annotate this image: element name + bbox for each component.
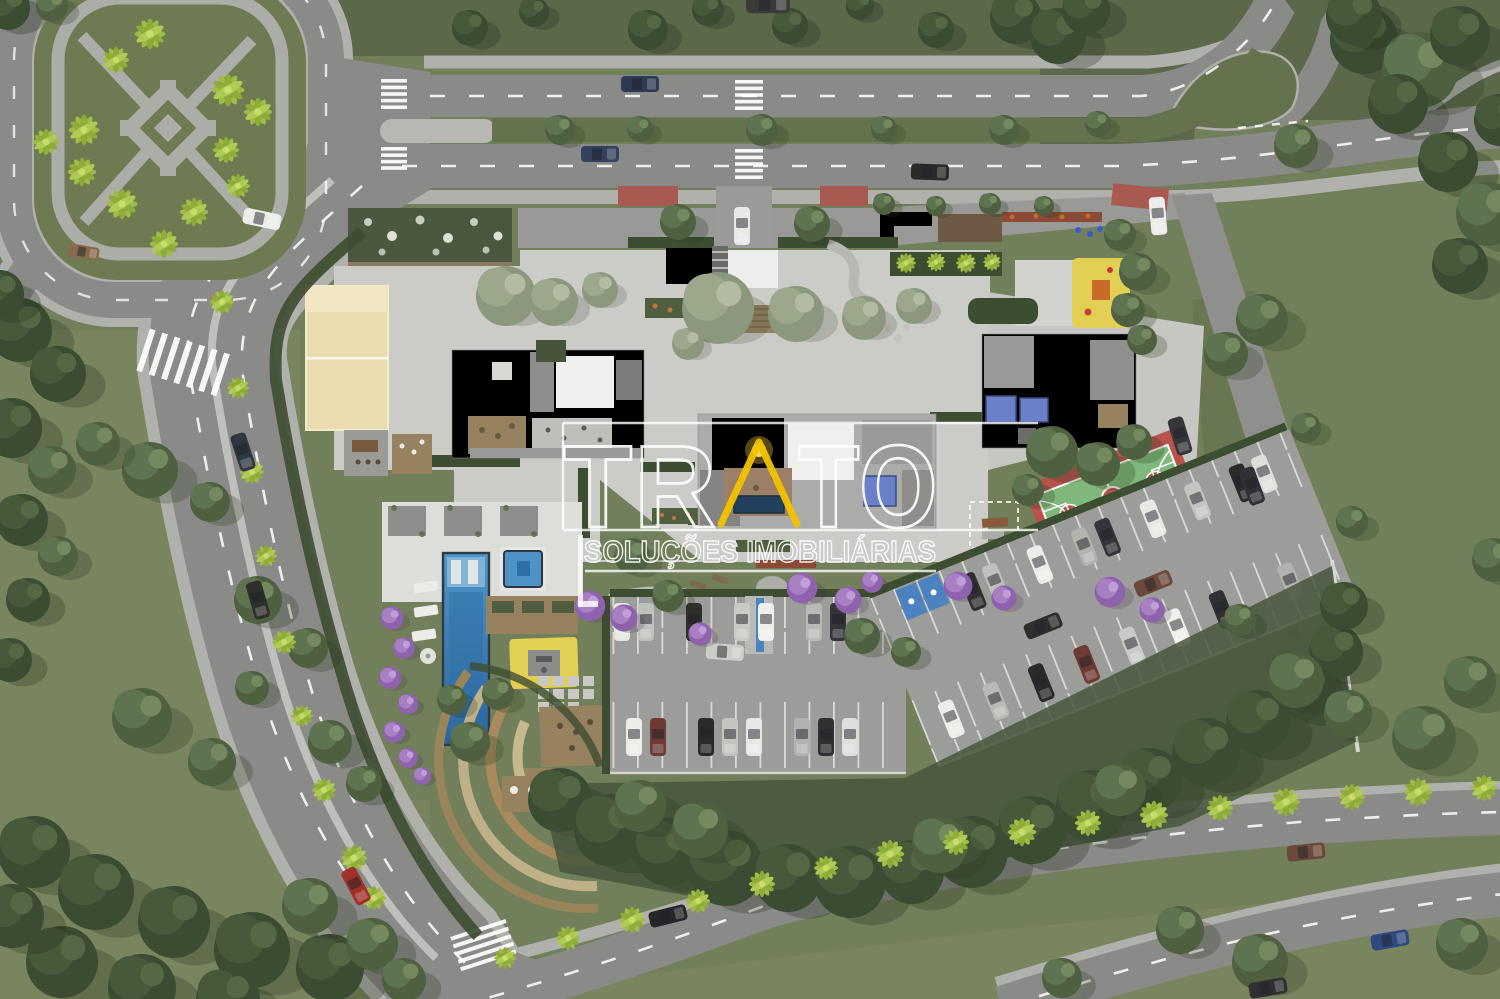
site-plan-svg: TR TO SOLUÇÕES IMOBILIÁRIAS — [0, 0, 1500, 999]
planter-deck — [486, 596, 578, 634]
watermark-brand-left: TR — [563, 421, 718, 552]
kids-pool — [500, 547, 546, 591]
solar-panel — [1020, 398, 1048, 422]
sand-volleyball-court — [306, 286, 388, 430]
rooftop-pool — [734, 496, 784, 513]
green-roof-garden — [348, 208, 512, 268]
watermark-brand-right: TO — [798, 421, 939, 552]
entry-pavement-2 — [820, 186, 868, 206]
watermark-corner-foot — [578, 601, 598, 607]
aerial-site-plan-render: TR TO SOLUÇÕES IMOBILIÁRIAS — [0, 0, 1500, 999]
parking-hedge-west — [602, 596, 610, 774]
bbq-kiosk — [344, 430, 432, 476]
park-square — [33, 0, 306, 280]
solar-panel — [986, 396, 1016, 422]
watermark-tagline: SOLUÇÕES IMOBILIÁRIAS — [584, 533, 936, 569]
median-island-paved — [380, 119, 496, 143]
entry-pavement-1 — [618, 186, 678, 206]
pergolas — [388, 505, 538, 537]
